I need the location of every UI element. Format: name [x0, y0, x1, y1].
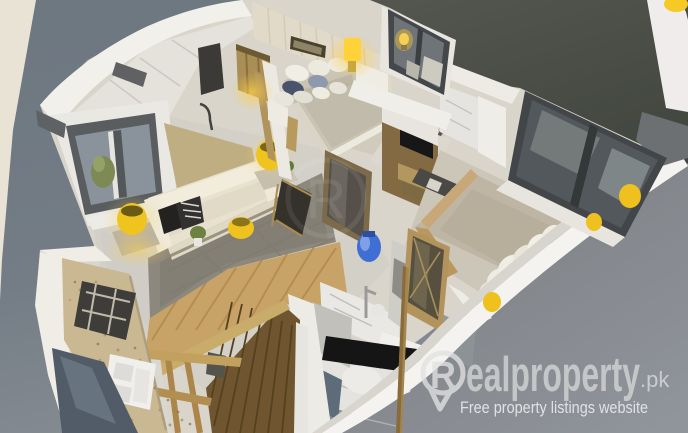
- svg-text:R: R: [430, 355, 456, 397]
- svg-text:Free property listings website: Free property listings website: [460, 398, 648, 417]
- svg-text:.pk: .pk: [640, 367, 670, 392]
- svg-text:R: R: [306, 167, 346, 230]
- svg-text:ealproperty: ealproperty: [466, 348, 640, 402]
